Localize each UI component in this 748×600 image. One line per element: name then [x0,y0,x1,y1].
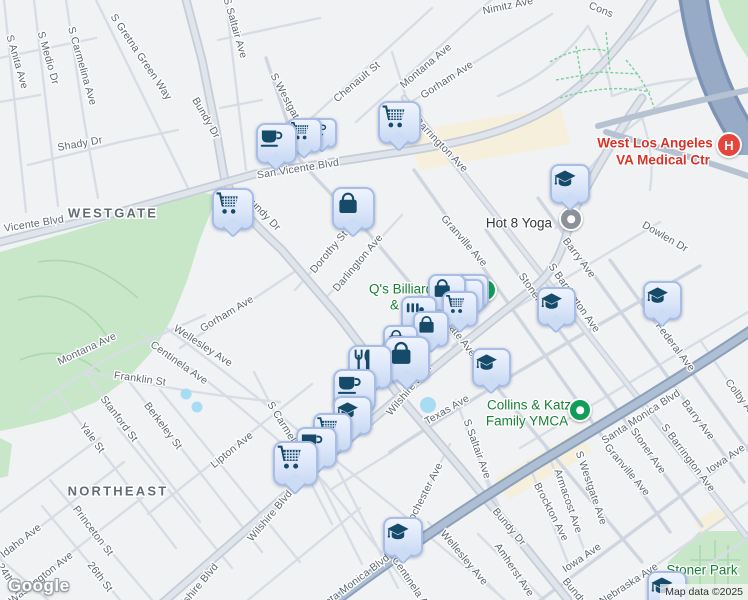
coffee-cup-icon [258,125,285,152]
street-label-gorham-ave: Gorham Ave [198,293,256,334]
poi-label-family-ymca[interactable]: Family YMCA [486,414,568,429]
shopping-bag-icon [415,313,438,336]
graduation-cap-marker[interactable] [383,517,423,557]
street-label-montana-ave: Montana Ave [56,330,118,368]
shopping-cart-icon [380,103,408,131]
shopping-cart-icon [444,293,467,316]
graduation-cap-marker[interactable] [537,287,576,326]
street-label-lipton-ave: Lipton Ave [208,429,255,470]
graduation-cap-marker[interactable] [550,164,590,204]
street-label-shady-dr: Shady Dr [57,134,104,154]
street-label-iowa-ave: Iowa Ave [704,442,747,477]
coffee-cup-icon [335,371,363,399]
street-label-s-carmelina-ave: S Carmelina Ave [65,25,99,106]
hospital-icon[interactable]: H [716,132,742,158]
poi-label-west-los-angeles[interactable]: West Los Angeles [597,136,713,151]
graduation-cap-icon [552,166,578,192]
area-label-westgate: WESTGATE [68,206,158,221]
graduation-cap-icon [385,519,411,545]
street-label-s-anita-ave: S Anita Ave [4,34,31,91]
street-label-santa-monica-blvd: Santa Monica Blvd [312,552,392,600]
poi-label-collins-katz[interactable]: Collins & Katz [487,398,571,413]
street-label-bundy-dr: Bundy Dr [560,576,599,600]
street-label-26th-st: 26th St [85,560,115,595]
shopping-bag-icon [334,189,362,217]
shopping-bag-marker[interactable] [332,187,375,230]
map-attribution: Map data ©2025 [660,584,748,600]
street-label-yale-st: Yale St [77,421,107,456]
shopping-cart-marker[interactable] [273,441,318,486]
graduation-cap-marker[interactable] [472,348,511,387]
street-label-s-gretna-green-way: S Gretna Green Way [108,12,175,103]
shopping-cart-icon [214,190,241,217]
street-label-wellesley-ave: Wellesley Ave [438,528,491,587]
shopping-cart-marker[interactable] [378,101,421,144]
shopping-cart-icon [275,443,305,473]
street-label-granville-ave: Granville Ave [438,213,489,269]
street-label-wilshire-blvd: Wilshire Blvd [171,561,221,600]
street-label-berkeley-st: Berkeley St [141,400,184,452]
street-label-chenault-st: Chenault St [331,59,382,105]
labels-layer: S Anita AveS Medio DrS Carmelina AveS Gr… [0,0,748,600]
street-label-amherst-ave: Amherst Ave [492,541,536,599]
street-label-vicente-blvd: Vicente Blvd [3,213,65,234]
street-label-barrington-ave: Barrington Ave [412,115,470,175]
street-label-barry-ave: Barry Ave [679,398,717,443]
google-logo[interactable]: Google [8,576,70,596]
poi-label-hot-8-yoga[interactable]: Hot 8 Yoga [486,216,553,231]
graduation-cap-marker[interactable] [643,281,682,320]
street-label-wilshire-blvd: Wilshire Blvd [245,488,295,544]
street-label-s-medio-dr: S Medio Dr [35,30,62,86]
street-label-bundy-dr: Bundy Dr [189,95,222,141]
street-label-dowlen-dr: Dowlen Dr [640,219,690,255]
street-label-cons: Cons [587,0,615,20]
graduation-cap-icon [645,283,670,308]
street-label-bundy-dr: Bundy Dr [490,506,529,549]
graduation-cap-icon [474,350,499,375]
street-label-iowa-ave: Iowa Ave [560,541,603,576]
street-label-franklin-st: Franklin St [113,369,167,388]
street-label-princeton-st: Princeton St [70,504,115,559]
street-label-nimitz-ave: Nimitz Ave [482,0,535,17]
poi-label-va-medical-ctr[interactable]: VA Medical Ctr [616,153,711,168]
shopping-cart-marker[interactable] [212,188,254,230]
street-label-barry-ave: Barry Ave [560,236,598,281]
ymca-dot[interactable] [568,398,592,422]
graduation-cap-icon [539,289,564,314]
street-label-dorothy-st: Dorothy St [308,228,350,275]
street-label-stanford-st: Stanford St [98,394,141,445]
coffee-cup-marker[interactable] [256,123,297,164]
street-label-colby-ave: Colby Ave [722,377,748,423]
street-label-federal-ave: Federal Ave [653,320,698,374]
area-label-northeast: NORTHEAST [68,484,169,499]
street-label-s-saltair-ave: S Saltair Ave [221,0,250,60]
street-label-idaho-ave: Idaho Ave [0,521,44,560]
map-canvas[interactable]: S Anita AveS Medio DrS Carmelina AveS Gr… [0,0,748,600]
street-label-centinela-ave: Centinela Ave [389,555,437,600]
